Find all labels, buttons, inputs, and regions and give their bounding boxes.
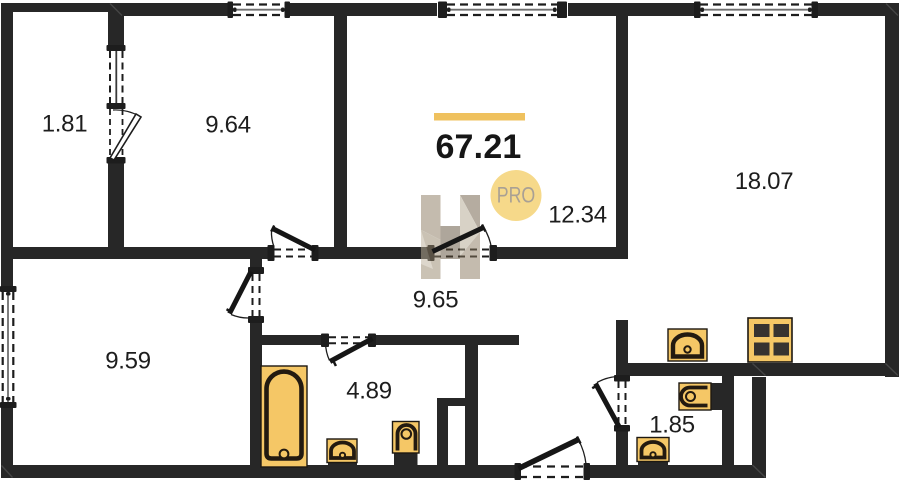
svg-text:1.85: 1.85 bbox=[649, 412, 695, 439]
svg-text:4.89: 4.89 bbox=[346, 378, 392, 405]
svg-text:9.64: 9.64 bbox=[205, 112, 251, 139]
svg-text:1.81: 1.81 bbox=[42, 111, 88, 138]
svg-text:12.34: 12.34 bbox=[548, 202, 607, 229]
svg-text:67.21: 67.21 bbox=[435, 128, 521, 166]
svg-text:PRO: PRO bbox=[497, 183, 536, 208]
svg-text:9.65: 9.65 bbox=[413, 287, 459, 314]
svg-text:9.59: 9.59 bbox=[105, 348, 151, 375]
svg-text:18.07: 18.07 bbox=[735, 168, 794, 195]
